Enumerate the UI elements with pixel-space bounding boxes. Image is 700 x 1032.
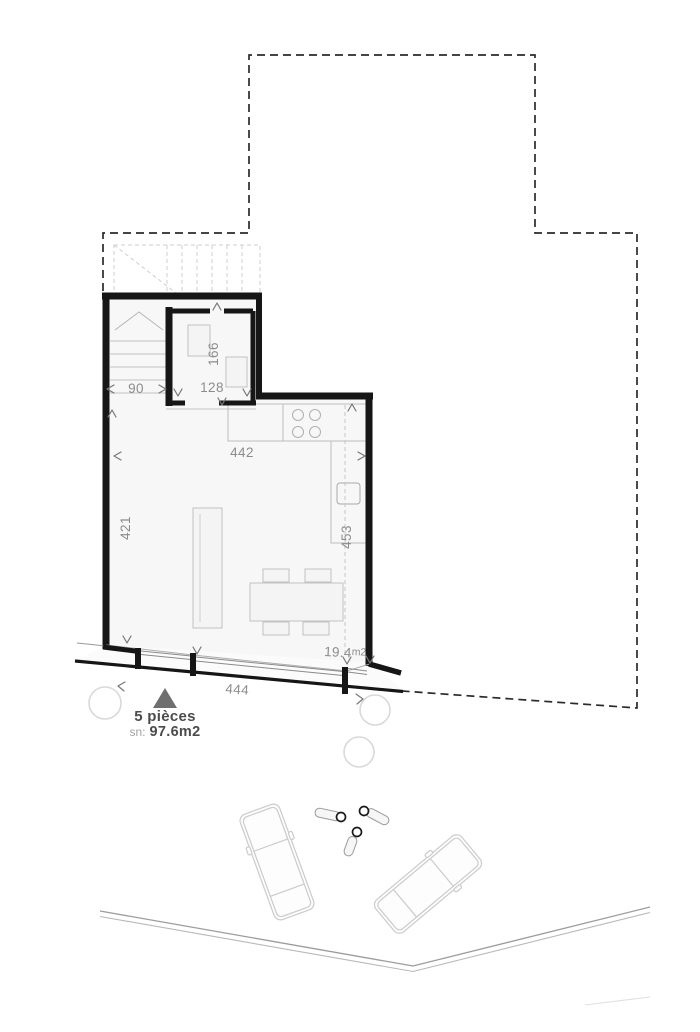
road-edges [100, 907, 650, 1005]
tree [89, 687, 121, 719]
bollard-group [314, 807, 390, 858]
dim-label-444: 444 [225, 681, 250, 698]
car [369, 829, 486, 939]
unit-marker-triangle [153, 688, 177, 708]
bollard-post [360, 807, 369, 816]
dim-label-90: 90 [128, 381, 144, 396]
bollard-post [353, 828, 362, 837]
dim-label-421: 421 [118, 516, 133, 540]
unit-annotation: 5 pièces sn:97.6m2 [130, 688, 201, 740]
planter [343, 835, 358, 857]
bollard-post [337, 813, 346, 822]
dim-label-128: 128 [200, 380, 224, 395]
kitchen-island [193, 508, 222, 628]
dim-label-166: 166 [206, 342, 221, 366]
exterior-stairs-dashed [114, 245, 260, 293]
chair [263, 569, 289, 582]
chair [263, 622, 289, 635]
car [235, 801, 319, 923]
unit-surface-label: sn:97.6m2 [130, 724, 201, 740]
dining-table [250, 583, 343, 621]
chair [305, 569, 331, 582]
tree [344, 737, 374, 767]
unit-rooms-label: 5 pièces [134, 708, 196, 725]
floor-plan-page: 90 128 166 442 421 453 444 19.4m2 5 pièc… [0, 0, 700, 1032]
dim-label-453: 453 [339, 525, 354, 549]
dim-label-442: 442 [230, 445, 254, 460]
tree [360, 695, 390, 725]
chair [303, 622, 329, 635]
